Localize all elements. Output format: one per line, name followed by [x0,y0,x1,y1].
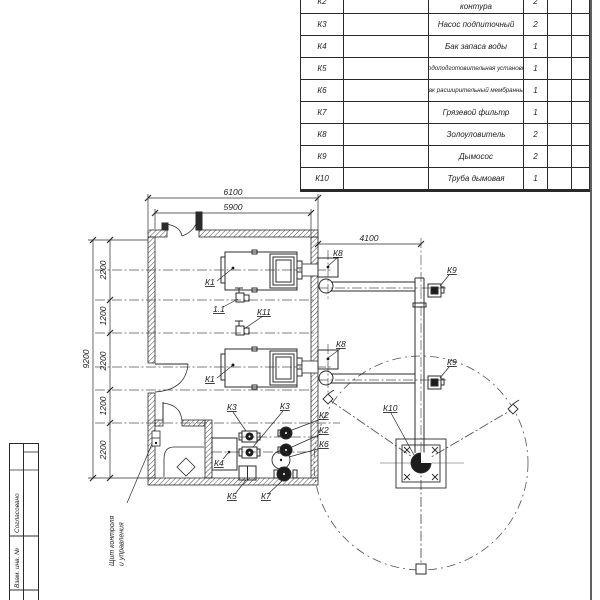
spec-row: К5Водоподготовительная установка1 [300,58,590,80]
makeup-pump-k3-upper [239,431,260,442]
spec-cell-note [547,36,571,58]
boiler-k1-lower [221,347,302,389]
spec-cell-mass [571,102,590,124]
spec-row: К6Бак расширительный мембранный1 [300,80,590,102]
spec-row: К4Бак запаса воды1 [300,36,590,58]
label-valve-1-1: 1.1 [213,304,225,314]
smoke-exhauster-k9-upper [428,284,444,297]
dim-chain-4: 1200 [98,396,108,415]
spec-cell-pos: К4 [300,36,343,58]
spec-cell-qty: 2 [523,124,547,146]
spec-cell-qty: 1 [523,80,547,102]
spec-cell-name: Золоуловитель [428,124,523,146]
label-k6: К6 [319,439,329,449]
dim-chain-3: 2200 [98,351,108,371]
spec-cell-name: Насос сетевого контура [428,0,523,14]
boiler-k1-upper [221,250,302,292]
label-k10: К10 [383,403,398,413]
dim-chain-2: 1200 [98,306,108,325]
control-panel-annotation-line2: и управления [119,522,126,566]
spec-cell-pos: К3 [300,14,343,36]
guy-anchor-right [508,400,519,414]
spec-cell-doc [343,102,428,124]
spec-row: К8Золоуловитель2 [300,124,590,146]
spec-cell-name: Труба дымовая [428,168,523,190]
spec-cell-qty: 2 [523,146,547,168]
spec-cell-doc [343,80,428,102]
dim-chain-5: 2200 [98,440,108,460]
spec-cell-doc [343,168,428,190]
spec-cell-mass [571,58,590,80]
spec-cell-note [547,124,571,146]
spec-row: К3Насос подпиточный2 [300,14,590,36]
spec-cell-mass [571,0,590,14]
spec-cell-qty: 1 [523,168,547,190]
dim-chain-1: 2200 [98,260,108,280]
guy-anchor-bottom [416,564,426,574]
label-k11: К11 [257,307,271,317]
spec-cell-note [547,58,571,80]
label-k2-upper: К2 [319,410,329,420]
dim-height-total: 9200 [81,349,91,368]
label-k9-lower: К9 [447,357,457,367]
makeup-pump-k3-lower [239,447,260,458]
spec-cell-mass [571,14,590,36]
spec-cell-note [547,102,571,124]
label-k3-upper: К3 [227,402,237,412]
smoke-exhauster-k9-lower [428,376,444,389]
spec-cell-qty: 1 [523,102,547,124]
spec-cell-mass [571,168,590,190]
spec-cell-note [547,80,571,102]
spec-cell-mass [571,124,590,146]
spec-cell-mass [571,146,590,168]
label-k1-lower: К1 [205,374,215,384]
label-k5: К5 [227,491,237,501]
spec-cell-pos: К8 [300,124,343,146]
label-k7: К7 [261,491,271,501]
spec-cell-name: Дымосос [428,146,523,168]
spec-cell-note [547,0,571,14]
label-k8-upper: К8 [333,248,343,258]
label-k4: К4 [214,458,224,468]
equipment-spec-table: К2Насос сетевого контура2К3Насос подпито… [300,0,590,192]
spec-cell-qty: 2 [523,14,547,36]
drawing-sheet: Согласовано Взам. инв. № [0,0,600,600]
spec-cell-doc [343,14,428,36]
spec-cell-pos: К7 [300,102,343,124]
control-panel-annotation-line1: Щит контроля [109,515,116,566]
dim-flue-offset: 4100 [360,233,379,243]
spec-cell-qty: 2 [523,0,547,14]
spec-cell-doc [343,146,428,168]
spec-cell-name: Бак расширительный мембранный [428,80,523,102]
frame-vzam-inv: Взам. инв. № [14,548,21,588]
spec-cell-doc [343,58,428,80]
label-k2-lower: К2 [319,425,329,435]
spec-cell-pos: К10 [300,168,343,190]
spec-row: К10Труба дымовая1 [300,168,590,190]
spec-cell-name: Насос подпиточный [428,14,523,36]
spec-cell-doc [343,0,428,14]
label-k8-lower: К8 [336,339,346,349]
spec-cell-pos: К6 [300,80,343,102]
control-panel-annotation: Щит контроля и управления [109,515,126,566]
chimney-k10 [380,439,464,488]
spec-cell-pos: К5 [300,58,343,80]
spec-cell-pos: К9 [300,146,343,168]
spec-cell-note [547,14,571,36]
spec-cell-qty: 1 [523,36,547,58]
label-k9-upper: К9 [447,265,457,275]
spec-cell-doc [343,124,428,146]
spec-cell-note [547,168,571,190]
inner-room-fixtures [152,431,204,477]
spec-cell-mass [571,80,590,102]
dim-width-inner: 5900 [224,202,243,212]
spec-row: К2Насос сетевого контура2 [300,0,590,14]
spec-cell-qty: 1 [523,58,547,80]
label-k1-upper: К1 [205,277,215,287]
label-k3-lower: К3 [280,401,290,411]
entrance-door [162,212,202,236]
flue-system [318,258,426,453]
spec-cell-name: Бак запаса воды [428,36,523,58]
frame-soglasovano: Согласовано [14,493,21,533]
spec-cell-doc [343,36,428,58]
network-pump-k2-lower [278,444,292,456]
dim-width-outer: 6100 [224,187,243,197]
spec-row: К7Грязевой фильтр1 [300,102,590,124]
spec-cell-name: Грязевой фильтр [428,102,523,124]
spec-row: К9Дымосос2 [300,146,590,168]
spec-cell-mass [571,36,590,58]
spec-cell-name: Водоподготовительная установка [428,58,523,80]
spec-cell-pos: К2 [300,0,343,14]
side-door [155,364,188,392]
spec-cell-note [547,146,571,168]
inner-room-door [163,402,182,422]
